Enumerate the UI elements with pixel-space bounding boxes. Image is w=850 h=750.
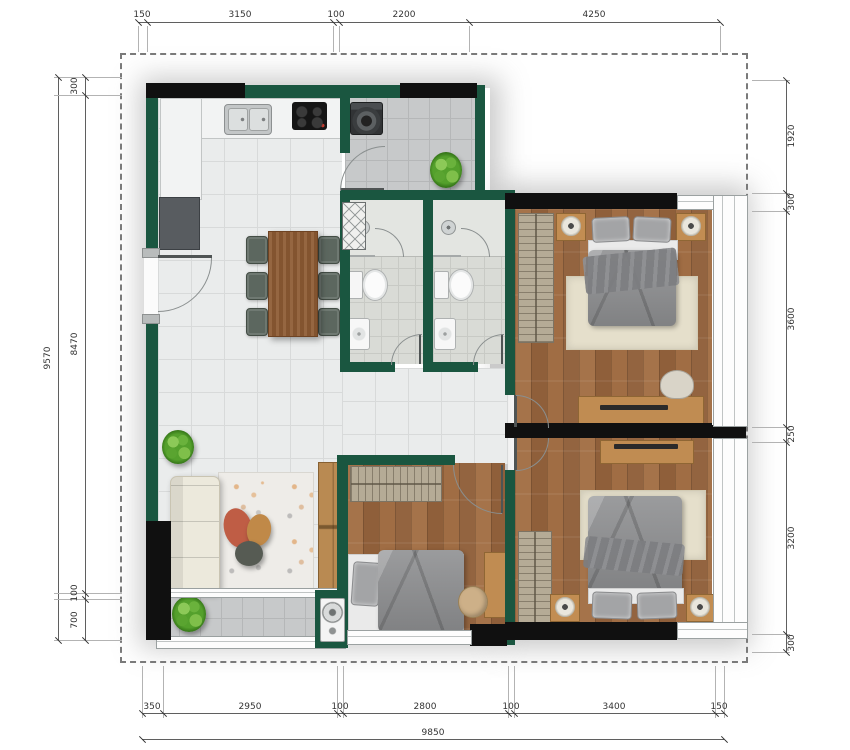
cooktop: [292, 102, 327, 130]
wall-black-utility-top: [400, 83, 477, 98]
kitchen-sink: [224, 104, 272, 135]
dim-line-right: [786, 80, 787, 652]
shower-head: [441, 220, 456, 235]
bedroom1-east-window: [713, 195, 748, 427]
dim-label-left-total: 9570: [43, 340, 53, 376]
dim-label-right: 300: [787, 625, 797, 661]
table-lamp: [555, 597, 575, 617]
ext-line: [752, 427, 790, 428]
wall-black-bedroom3-south: [470, 624, 507, 646]
ext-line: [752, 652, 790, 653]
dim-label-left: 300: [70, 68, 80, 104]
desk-shelf-bar: [600, 405, 668, 410]
ext-line: [54, 593, 122, 594]
ext-line: [54, 77, 122, 78]
tv: [614, 444, 678, 449]
wall-bedroom3-north: [337, 455, 455, 465]
shower-partition: [433, 255, 461, 257]
coffee-table-pouf-gray: [235, 541, 263, 566]
wall-top: [245, 85, 345, 98]
dim-label-left: 8470: [70, 326, 80, 362]
wall-left-mid: [146, 314, 158, 521]
dim-label-left: 700: [70, 602, 80, 638]
desk-chair: [660, 370, 694, 399]
dim-label-bottom: 3400: [596, 702, 632, 712]
bedroom2-south-window: [677, 622, 748, 639]
washing-machine: [320, 598, 345, 642]
dim-label-bottom: 2800: [407, 702, 443, 712]
dim-label-bottom-total: 9850: [408, 728, 458, 738]
toilet-tank: [434, 271, 449, 299]
sink-basin-left: [228, 108, 248, 131]
ext-line: [54, 95, 122, 96]
window-line: [734, 196, 735, 426]
wall-bath-divider: [423, 190, 433, 370]
wall-utility-right: [475, 85, 485, 200]
potted-plant: [162, 430, 194, 464]
ext-line: [54, 640, 122, 641]
ext-line: [138, 26, 139, 52]
wall-black-bedroom2-south: [505, 622, 677, 640]
potted-plant: [430, 152, 462, 188]
dim-label-right: 1920: [787, 118, 797, 154]
sofa: [170, 476, 220, 594]
bed3-duvet: [378, 550, 464, 632]
dining-chair: [318, 272, 340, 300]
wall-black-bedroom1-north: [505, 193, 677, 209]
dining-chair: [246, 308, 268, 336]
wall-bedrooms-west-lower: [505, 470, 515, 645]
wall-bath2-south: [423, 362, 478, 372]
dim-line-top: [138, 22, 720, 23]
kitchen-counter-left: [160, 98, 202, 200]
wall-utility-left: [340, 95, 350, 153]
dining-chair: [246, 272, 268, 300]
toilet-bowl: [448, 269, 474, 301]
bedroom1-desk: [578, 396, 704, 424]
dining-chair: [318, 236, 340, 264]
dim-line-left-inner: [85, 77, 86, 640]
ext-line: [752, 442, 790, 443]
laundry-machine: [350, 102, 383, 135]
dim-label-bottom: 150: [701, 702, 737, 712]
dim-label-bottom: 100: [493, 702, 529, 712]
ext-line: [333, 26, 334, 52]
bedroom3-south-window: [347, 630, 472, 645]
dim-label-top: 4250: [576, 10, 612, 20]
table-lamp: [690, 597, 710, 617]
pillow: [632, 216, 671, 243]
potted-plant: [172, 596, 206, 632]
floor-plan: 150 3150 100 2200 4250 1920 300 3600 250…: [0, 0, 850, 750]
ext-line: [54, 599, 122, 600]
dining-table: [268, 231, 318, 337]
table-lamp: [561, 216, 581, 236]
table-lamp: [681, 216, 701, 236]
window-line: [734, 439, 735, 623]
entry-door-opening: [144, 256, 158, 314]
bathroom-sink: [348, 318, 370, 350]
ext-line: [469, 26, 470, 52]
wall-utility-top: [345, 85, 402, 98]
wall-black-top-left: [146, 83, 245, 98]
pillow: [350, 561, 381, 607]
ext-line: [752, 211, 790, 212]
pillow: [592, 591, 633, 619]
wall-black-balcony-left: [146, 521, 171, 640]
window-line: [348, 636, 471, 637]
window-line: [722, 196, 723, 426]
ext-line: [752, 80, 790, 81]
dim-label-right: 250: [787, 416, 797, 452]
bedroom2-east-window: [713, 438, 748, 624]
bathroom-sink: [434, 318, 456, 350]
dim-label-right: 3600: [787, 301, 797, 337]
dining-chair: [318, 308, 340, 336]
stool: [458, 586, 488, 618]
dining-chair: [246, 236, 268, 264]
bedroom1-wardrobe: [518, 213, 554, 343]
wall-bedrooms-west-upper: [505, 190, 515, 395]
pillow: [591, 216, 630, 243]
sink-basin-right: [249, 108, 269, 131]
dim-line-bottom: [142, 713, 724, 714]
dim-line-left-outer: [58, 77, 59, 640]
toilet-tank: [348, 271, 363, 299]
wall-bath1-south: [340, 362, 395, 372]
dim-label-top: 150: [124, 10, 160, 20]
wall-left-upper: [146, 95, 158, 256]
bedroom2-wardrobe: [518, 531, 552, 624]
pillow: [637, 591, 678, 619]
dim-label-right: 3200: [787, 520, 797, 556]
ext-line: [339, 26, 340, 52]
ext-line: [752, 193, 790, 194]
dim-label-bottom: 350: [134, 702, 170, 712]
service-shaft: [342, 202, 366, 250]
bedroom3-wardrobe: [350, 466, 442, 502]
window-line: [722, 439, 723, 623]
entry-door-frame-bottom: [142, 314, 160, 324]
toilet-bowl: [362, 269, 388, 301]
dim-label-bottom: 100: [322, 702, 358, 712]
dim-line-bottom-total: [142, 739, 724, 740]
dim-label-bottom: 2950: [232, 702, 268, 712]
ext-line: [752, 634, 790, 635]
window-line: [678, 629, 747, 630]
kitchen-cabinet: [159, 197, 200, 250]
shower-partition: [347, 255, 375, 257]
dim-label-top: 3150: [222, 10, 258, 20]
dim-label-top: 2200: [386, 10, 422, 20]
dim-label-right: 300: [787, 184, 797, 220]
dim-label-top: 100: [318, 10, 354, 20]
ext-line: [720, 26, 721, 52]
ext-line: [147, 26, 148, 52]
